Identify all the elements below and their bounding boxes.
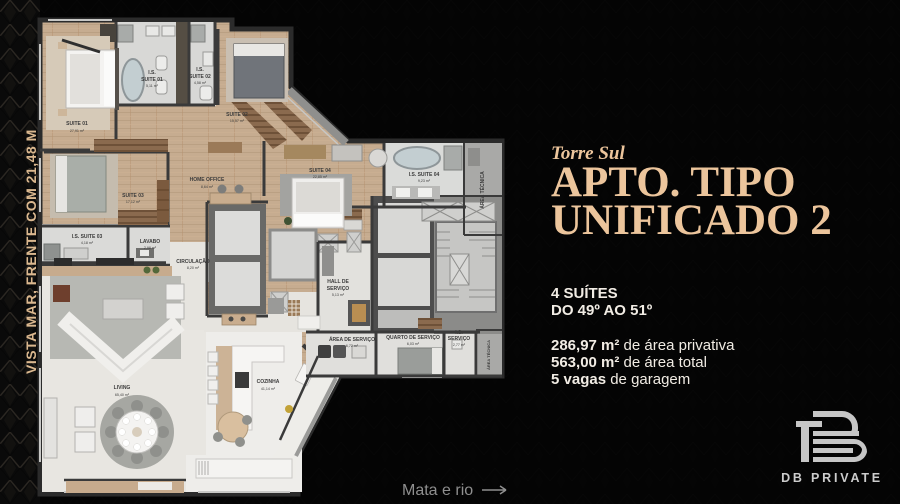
- svg-text:SUITE 01: SUITE 01: [66, 121, 88, 127]
- svg-text:I.S. SUITE 04: I.S. SUITE 04: [409, 172, 440, 178]
- svg-text:LIVING: LIVING: [114, 385, 131, 391]
- svg-text:CIRCULAÇÃO: CIRCULAÇÃO: [176, 258, 210, 265]
- svg-text:4,18 m²: 4,18 m²: [81, 241, 94, 245]
- svg-text:COZINHA: COZINHA: [257, 379, 280, 385]
- svg-text:2,77 m²: 2,77 m²: [453, 343, 466, 347]
- svg-text:5,13 m²: 5,13 m²: [332, 293, 345, 297]
- svg-text:SERVIÇO: SERVIÇO: [327, 286, 350, 292]
- svg-text:I.S.: I.S.: [196, 67, 204, 73]
- svg-text:SUITE 01: SUITE 01: [141, 77, 163, 83]
- svg-text:I.S. SUITE 03: I.S. SUITE 03: [72, 234, 103, 240]
- svg-text:8,20 m²: 8,20 m²: [187, 266, 200, 270]
- svg-text:ÁREA TÉCNICA: ÁREA TÉCNICA: [486, 340, 491, 370]
- svg-text:SUITE 04: SUITE 04: [309, 168, 331, 174]
- svg-text:SUITE 03: SUITE 03: [122, 193, 144, 199]
- svg-text:5 vagas de garagem: 5 vagas de garagem: [551, 371, 690, 388]
- svg-text:DO 49º AO 51º: DO 49º AO 51º: [551, 302, 653, 319]
- svg-text:I.S.: I.S.: [148, 70, 156, 76]
- svg-text:27,91 m²: 27,91 m²: [70, 129, 85, 133]
- svg-text:8,64 m²: 8,64 m²: [201, 185, 214, 189]
- svg-text:563,00 m² de área total: 563,00 m² de área total: [551, 354, 707, 371]
- svg-text:41,14 m²: 41,14 m²: [261, 387, 276, 391]
- svg-text:17,12 m²: 17,12 m²: [126, 200, 141, 204]
- svg-text:HALL DE: HALL DE: [327, 279, 349, 285]
- svg-text:HOME OFFICE: HOME OFFICE: [190, 177, 225, 183]
- svg-text:286,97 m² de área privativa: 286,97 m² de área privativa: [551, 337, 735, 354]
- svg-text:2,98 m²: 2,98 m²: [144, 246, 157, 250]
- svg-text:22,85 m²: 22,85 m²: [313, 175, 328, 179]
- svg-text:ÁREA DE SERVIÇO: ÁREA DE SERVIÇO: [329, 336, 375, 343]
- svg-text:LAVABO: LAVABO: [140, 239, 160, 245]
- svg-text:65,40 m²: 65,40 m²: [115, 393, 130, 397]
- svg-text:QUARTO DE SERVIÇO: QUARTO DE SERVIÇO: [386, 335, 440, 341]
- svg-text:6,72 m²: 6,72 m²: [346, 344, 359, 348]
- svg-text:ÁREA TÉCNICA: ÁREA TÉCNICA: [478, 171, 486, 209]
- svg-text:5,11 m²: 5,11 m²: [146, 84, 159, 88]
- svg-text:4 SUÍTES: 4 SUÍTES: [551, 285, 618, 302]
- svg-text:UNIFICADO 2: UNIFICADO 2: [551, 197, 832, 244]
- svg-text:SERVIÇO: SERVIÇO: [448, 336, 471, 342]
- svg-text:9,23 m²: 9,23 m²: [418, 179, 431, 183]
- svg-text:SUITE 02: SUITE 02: [189, 74, 211, 80]
- svg-text:VISTA MAR, FRENTE COM 21,48 M: VISTA MAR, FRENTE COM 21,48 M: [23, 129, 39, 374]
- svg-text:Mata e rio: Mata e rio: [402, 482, 473, 499]
- svg-text:4,58 m²: 4,58 m²: [194, 81, 207, 85]
- svg-text:SUITE 02: SUITE 02: [226, 112, 248, 118]
- svg-text:15,57 m²: 15,57 m²: [230, 119, 245, 123]
- svg-text:DB PRIVATE: DB PRIVATE: [781, 471, 883, 485]
- svg-text:6,03 m²: 6,03 m²: [407, 342, 420, 346]
